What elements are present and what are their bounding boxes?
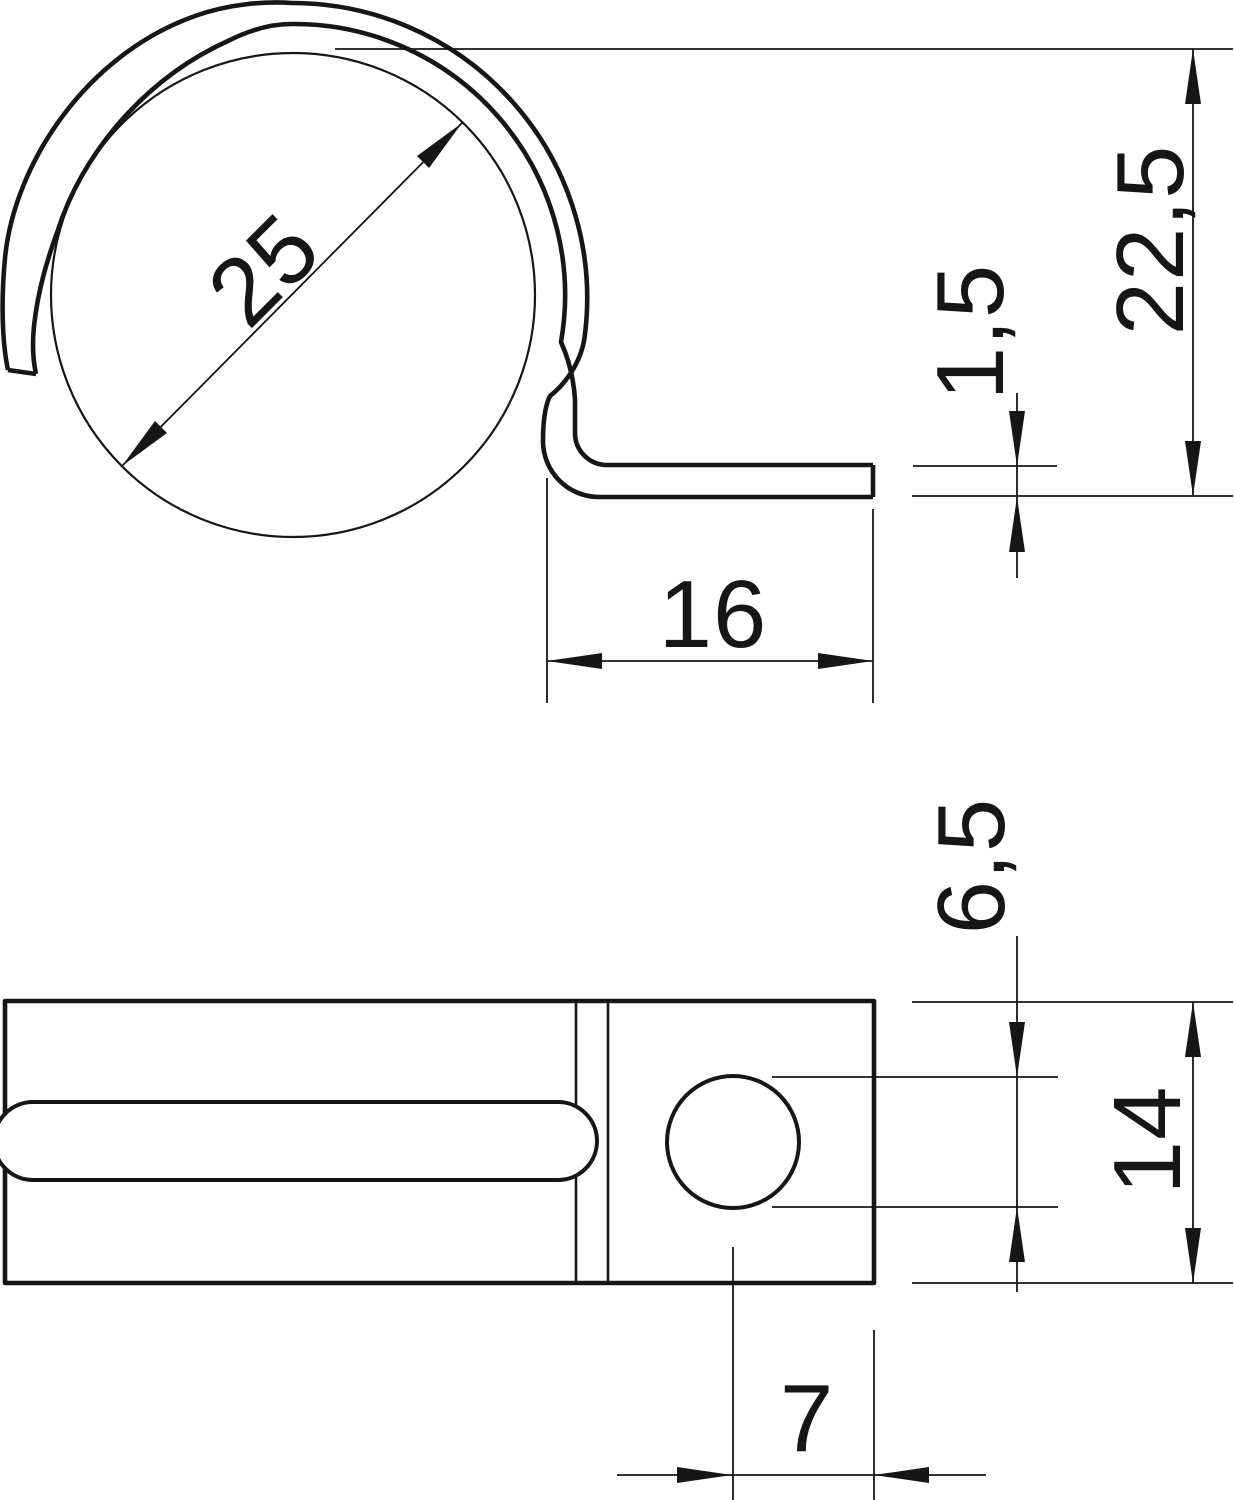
dimension-material-thickness: 1,5: [913, 264, 1057, 578]
front-view: 25 22,5 1,5 16: [3, 2, 1233, 703]
screw-hole: [667, 1076, 799, 1208]
strap-inner-edge: [33, 24, 873, 465]
clip-drawing-svg: 25 22,5 1,5 16: [0, 0, 1234, 1500]
dimension-clamp-diameter: 25: [122, 123, 462, 466]
technical-drawing-page: 25 22,5 1,5 16: [0, 0, 1234, 1500]
dimension-overall-height: 22,5: [335, 49, 1233, 496]
slot-cutout: [0, 1102, 597, 1180]
dim-hole-edge-offset-label: 7: [780, 1365, 834, 1472]
dim-strap-width-label: 14: [1094, 1086, 1201, 1195]
dimension-hole-diameter: 6,5: [772, 798, 1058, 1292]
dim-clamp-diameter-label: 25: [188, 194, 341, 347]
plan-view: 6,5 14 7: [0, 798, 1233, 1500]
dimension-foot-length: 16: [547, 478, 873, 703]
strap-end-cap-left: [8, 370, 36, 374]
dim-material-thickness-label: 1,5: [917, 264, 1024, 400]
dim-foot-length-label: 16: [659, 561, 768, 668]
dim-overall-height-label: 22,5: [1097, 145, 1204, 336]
dimension-strap-width: 14: [912, 1002, 1233, 1283]
dim-hole-diameter-label: 6,5: [918, 798, 1025, 934]
strap-outer-edge: [3, 2, 873, 497]
